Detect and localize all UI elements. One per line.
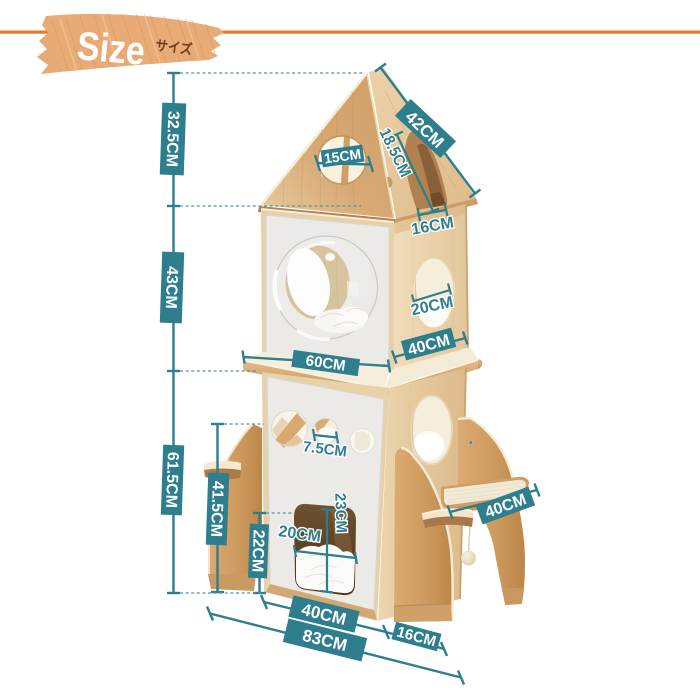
svg-text:32.5CM: 32.5CM: [163, 111, 182, 168]
svg-text:23CM: 23CM: [331, 493, 349, 534]
svg-text:Size: Size: [75, 24, 147, 74]
svg-text:22CM: 22CM: [248, 529, 266, 572]
svg-text:41.5CM: 41.5CM: [207, 481, 226, 538]
svg-text:43CM: 43CM: [162, 266, 180, 309]
svg-text:61.5CM: 61.5CM: [162, 452, 181, 509]
